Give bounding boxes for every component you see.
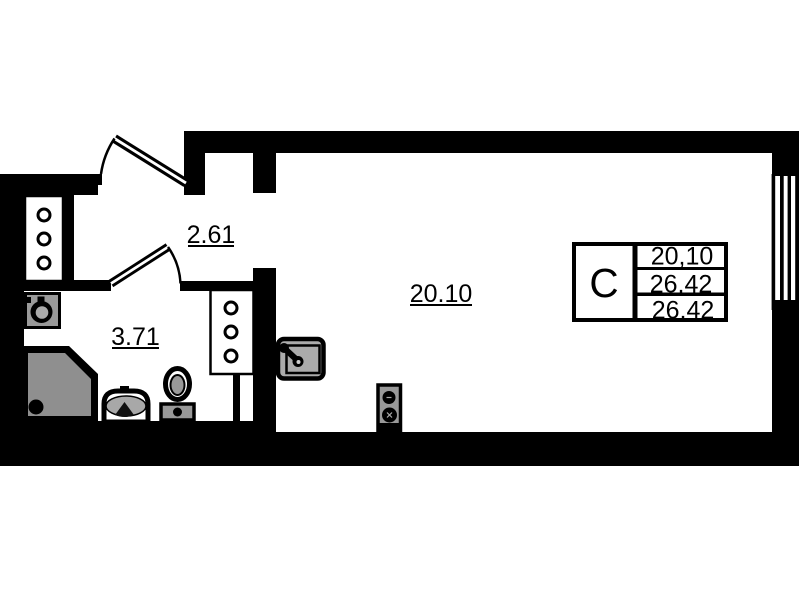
svg-text:20,10: 20,10 (651, 243, 714, 271)
svg-text:20.10: 20.10 (410, 280, 473, 308)
svg-text:26,42: 26,42 (652, 297, 715, 325)
svg-text:3.71: 3.71 (111, 323, 160, 351)
svg-text:C: C (589, 260, 618, 306)
svg-text:26,42: 26,42 (650, 271, 713, 299)
svg-text:2.61: 2.61 (187, 221, 236, 249)
